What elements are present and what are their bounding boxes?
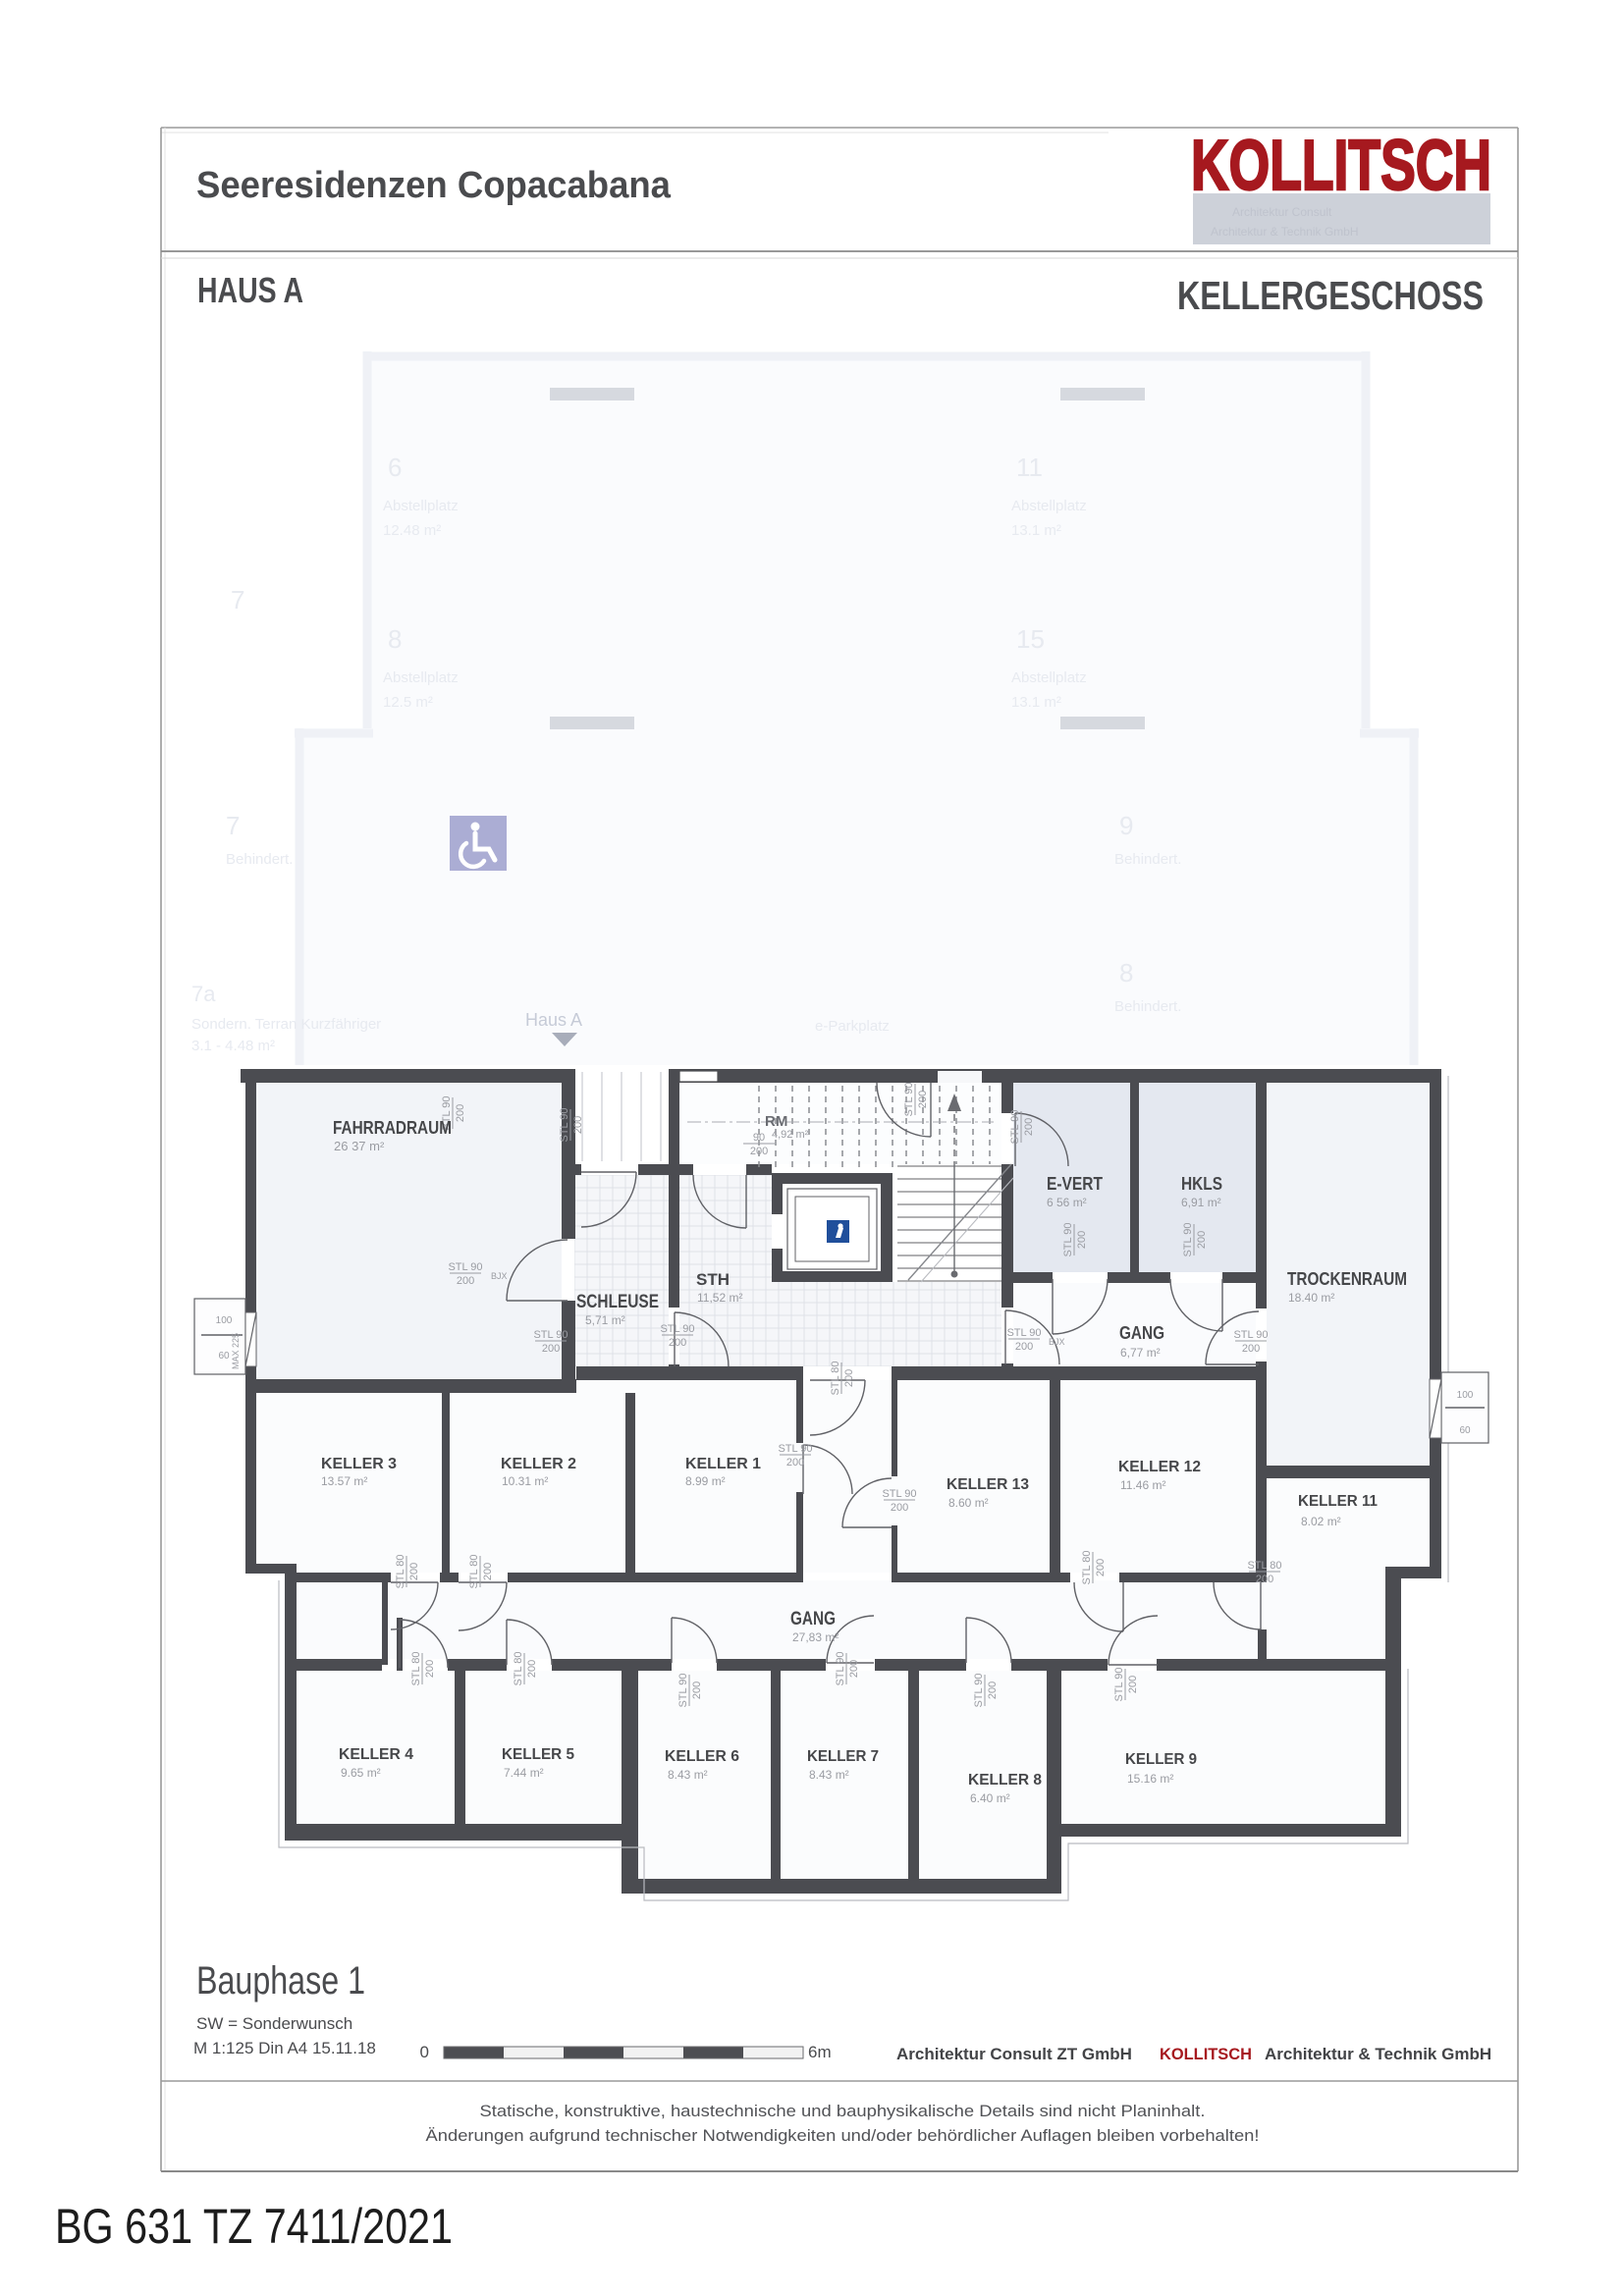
svg-text:200: 200 bbox=[572, 1116, 584, 1134]
svg-text:13.1 m²: 13.1 m² bbox=[1011, 694, 1061, 711]
svg-text:KELLER 4: KELLER 4 bbox=[339, 1746, 413, 1763]
svg-text:200: 200 bbox=[1076, 1231, 1088, 1249]
svg-text:60: 60 bbox=[1459, 1425, 1471, 1436]
svg-text:Sondern. Terran Kurzfähriger: Sondern. Terran Kurzfähriger bbox=[191, 1016, 381, 1033]
svg-text:60: 60 bbox=[218, 1351, 230, 1362]
svg-text:STL 80: STL 80 bbox=[410, 1651, 422, 1685]
svg-text:BJX: BJX bbox=[491, 1271, 508, 1281]
svg-text:Abstellplatz: Abstellplatz bbox=[1011, 498, 1087, 514]
svg-text:Seeresidenzen Copacabana: Seeresidenzen Copacabana bbox=[196, 165, 672, 206]
svg-text:8: 8 bbox=[388, 624, 402, 654]
svg-text:200: 200 bbox=[891, 1502, 908, 1514]
svg-text:6: 6 bbox=[388, 453, 402, 482]
svg-text:6m: 6m bbox=[808, 2043, 832, 2061]
svg-text:MAX 225: MAX 225 bbox=[231, 1333, 241, 1369]
svg-text:11,52 m²: 11,52 m² bbox=[697, 1291, 742, 1305]
svg-text:200: 200 bbox=[691, 1682, 703, 1699]
svg-text:Architektur Consult: Architektur Consult bbox=[1232, 205, 1332, 219]
svg-text:200: 200 bbox=[1196, 1231, 1208, 1249]
svg-text:Abstellplatz: Abstellplatz bbox=[383, 669, 459, 686]
svg-text:15: 15 bbox=[1016, 624, 1045, 654]
svg-text:200: 200 bbox=[750, 1146, 768, 1157]
svg-text:12.5 m²: 12.5 m² bbox=[383, 694, 433, 711]
svg-text:5,71 m²: 5,71 m² bbox=[585, 1313, 625, 1327]
svg-text:7.44 m²: 7.44 m² bbox=[504, 1766, 544, 1780]
svg-text:STL 90: STL 90 bbox=[1062, 1222, 1074, 1256]
svg-text:GANG: GANG bbox=[1119, 1323, 1164, 1343]
svg-text:200: 200 bbox=[424, 1660, 436, 1678]
svg-text:6 56 m²: 6 56 m² bbox=[1047, 1196, 1087, 1209]
svg-text:STL 90: STL 90 bbox=[778, 1443, 812, 1455]
svg-text:KELLER 9: KELLER 9 bbox=[1125, 1751, 1197, 1768]
svg-text:4,92 m²: 4,92 m² bbox=[772, 1129, 809, 1141]
svg-text:12.48 m²: 12.48 m² bbox=[383, 522, 441, 539]
svg-text:200: 200 bbox=[542, 1343, 560, 1355]
svg-text:STL 80: STL 80 bbox=[468, 1554, 480, 1588]
svg-text:KELLER 1: KELLER 1 bbox=[685, 1456, 761, 1472]
svg-text:200: 200 bbox=[1015, 1341, 1033, 1353]
svg-text:STL 90: STL 90 bbox=[559, 1107, 570, 1142]
svg-text:13.57 m²: 13.57 m² bbox=[321, 1474, 367, 1488]
svg-text:18.40 m²: 18.40 m² bbox=[1288, 1291, 1334, 1305]
svg-text:M 1:125 Din A4 15.11.18: M 1:125 Din A4 15.11.18 bbox=[193, 2039, 376, 2057]
svg-text:200: 200 bbox=[987, 1682, 999, 1699]
svg-text:6.40 m²: 6.40 m² bbox=[970, 1791, 1010, 1805]
svg-text:200: 200 bbox=[786, 1457, 804, 1468]
svg-text:RM: RM bbox=[765, 1113, 787, 1130]
svg-text:STL 80: STL 80 bbox=[830, 1361, 841, 1395]
svg-text:200: 200 bbox=[848, 1660, 860, 1678]
svg-text:KELLER 2: KELLER 2 bbox=[501, 1456, 576, 1472]
svg-text:8: 8 bbox=[1119, 958, 1133, 988]
svg-text:200: 200 bbox=[526, 1660, 538, 1678]
svg-text:FAHRRADRAUM: FAHRRADRAUM bbox=[333, 1118, 452, 1138]
svg-text:KELLER 3: KELLER 3 bbox=[321, 1456, 397, 1472]
svg-text:Abstellplatz: Abstellplatz bbox=[383, 498, 459, 514]
svg-text:STL 90: STL 90 bbox=[677, 1673, 689, 1707]
svg-text:8.02 m²: 8.02 m² bbox=[1301, 1515, 1341, 1528]
svg-text:KELLER 13: KELLER 13 bbox=[947, 1476, 1029, 1493]
svg-text:STL 90: STL 90 bbox=[973, 1673, 985, 1707]
svg-text:HAUS A: HAUS A bbox=[197, 270, 303, 310]
svg-text:KELLER 6: KELLER 6 bbox=[665, 1748, 739, 1765]
svg-text:SCHLEUSE: SCHLEUSE bbox=[576, 1292, 659, 1312]
svg-text:9.65 m²: 9.65 m² bbox=[341, 1766, 381, 1780]
svg-text:TROCKENRAUM: TROCKENRAUM bbox=[1287, 1269, 1407, 1289]
svg-text:200: 200 bbox=[482, 1563, 494, 1580]
svg-text:8.43 m²: 8.43 m² bbox=[809, 1768, 849, 1782]
svg-text:Änderungen aufgrund technische: Änderungen aufgrund technischer Notwendi… bbox=[426, 2127, 1260, 2145]
svg-text:KELLER 8: KELLER 8 bbox=[968, 1772, 1042, 1789]
svg-text:STL 90: STL 90 bbox=[533, 1329, 568, 1341]
svg-text:100: 100 bbox=[1457, 1390, 1474, 1401]
svg-text:7a: 7a bbox=[191, 982, 216, 1006]
svg-text:BJX: BJX bbox=[1049, 1337, 1065, 1347]
svg-text:Bauphase 1: Bauphase 1 bbox=[196, 1959, 365, 2002]
svg-text:200: 200 bbox=[457, 1275, 474, 1287]
svg-text:200: 200 bbox=[1095, 1559, 1107, 1576]
svg-text:STL 90: STL 90 bbox=[835, 1651, 846, 1685]
svg-text:STL 80: STL 80 bbox=[513, 1651, 524, 1685]
svg-text:KELLER 5: KELLER 5 bbox=[502, 1746, 574, 1763]
svg-text:Architektur & Technik GmbH: Architektur & Technik GmbH bbox=[1211, 225, 1359, 239]
svg-text:STL 90: STL 90 bbox=[1233, 1329, 1268, 1341]
svg-text:90: 90 bbox=[753, 1132, 765, 1144]
svg-text:STL 90: STL 90 bbox=[903, 1082, 915, 1116]
svg-text:KELLER 7: KELLER 7 bbox=[807, 1748, 879, 1765]
svg-text:7: 7 bbox=[226, 811, 240, 840]
svg-text:200: 200 bbox=[917, 1091, 929, 1108]
svg-text:200: 200 bbox=[455, 1104, 466, 1122]
svg-text:6,91 m²: 6,91 m² bbox=[1181, 1196, 1221, 1209]
svg-text:3.1 - 4.48 m²: 3.1 - 4.48 m² bbox=[191, 1038, 275, 1054]
svg-text:STL 90: STL 90 bbox=[882, 1488, 916, 1500]
svg-text:STL 80: STL 80 bbox=[1081, 1550, 1093, 1584]
svg-text:Statische, konstruktive, haust: Statische, konstruktive, haustechnische … bbox=[480, 2103, 1206, 2120]
svg-text:STL 90: STL 90 bbox=[1182, 1222, 1194, 1256]
svg-text:27,83 m²: 27,83 m² bbox=[792, 1630, 839, 1644]
svg-text:Behindert.: Behindert. bbox=[1114, 851, 1181, 868]
svg-text:Behindert.: Behindert. bbox=[1114, 998, 1181, 1015]
svg-text:13.1 m²: 13.1 m² bbox=[1011, 522, 1061, 539]
svg-text:KELLERGESCHOSS: KELLERGESCHOSS bbox=[1177, 273, 1484, 318]
svg-text:STL 90: STL 90 bbox=[448, 1261, 482, 1273]
svg-text:200: 200 bbox=[1127, 1676, 1139, 1693]
svg-text:200: 200 bbox=[1242, 1343, 1260, 1355]
svg-text:26 37 m²: 26 37 m² bbox=[334, 1139, 385, 1153]
svg-text:KELLER 11: KELLER 11 bbox=[1298, 1493, 1378, 1510]
svg-text:STL 90: STL 90 bbox=[1009, 1109, 1021, 1144]
svg-text:8.60 m²: 8.60 m² bbox=[948, 1496, 989, 1510]
svg-text:KELLER 12: KELLER 12 bbox=[1118, 1459, 1201, 1475]
svg-text:STL 80: STL 80 bbox=[395, 1554, 406, 1588]
svg-text:STL 80: STL 80 bbox=[1247, 1560, 1281, 1572]
svg-text:BG 631 TZ 7411/2021: BG 631 TZ 7411/2021 bbox=[55, 2199, 453, 2254]
svg-text:HKLS: HKLS bbox=[1181, 1174, 1222, 1194]
svg-text:11: 11 bbox=[1016, 453, 1043, 482]
svg-text:STL 90: STL 90 bbox=[1006, 1327, 1041, 1339]
svg-text:Architektur & Technik GmbH: Architektur & Technik GmbH bbox=[1265, 2045, 1491, 2063]
svg-text:10.31 m²: 10.31 m² bbox=[502, 1474, 548, 1488]
svg-text:Haus A: Haus A bbox=[525, 1010, 582, 1030]
svg-text:200: 200 bbox=[408, 1563, 420, 1580]
svg-text:STH: STH bbox=[696, 1270, 730, 1289]
svg-text:STL 90: STL 90 bbox=[660, 1323, 694, 1335]
svg-text:8.43 m²: 8.43 m² bbox=[668, 1768, 708, 1782]
svg-text:Abstellplatz: Abstellplatz bbox=[1011, 669, 1087, 686]
svg-text:200: 200 bbox=[1023, 1118, 1035, 1136]
svg-text:Architektur Consult ZT GmbH: Architektur Consult ZT GmbH bbox=[896, 2045, 1132, 2063]
svg-text:Behindert.: Behindert. bbox=[226, 851, 293, 868]
svg-text:200: 200 bbox=[843, 1369, 855, 1387]
svg-text:9: 9 bbox=[1119, 811, 1133, 840]
svg-text:11.46 m²: 11.46 m² bbox=[1120, 1478, 1165, 1492]
svg-text:e-Parkplatz: e-Parkplatz bbox=[815, 1018, 890, 1035]
svg-text:15.16 m²: 15.16 m² bbox=[1127, 1772, 1173, 1786]
svg-text:8.99 m²: 8.99 m² bbox=[685, 1474, 726, 1488]
svg-text:200: 200 bbox=[669, 1337, 686, 1349]
svg-text:0: 0 bbox=[420, 2043, 429, 2061]
svg-text:7: 7 bbox=[231, 585, 244, 614]
svg-text:SW = Sonderwunsch: SW = Sonderwunsch bbox=[196, 2014, 352, 2033]
svg-text:E-VERT: E-VERT bbox=[1047, 1174, 1103, 1194]
svg-text:6,77 m²: 6,77 m² bbox=[1120, 1346, 1161, 1360]
svg-text:100: 100 bbox=[216, 1315, 233, 1326]
svg-text:200: 200 bbox=[1256, 1574, 1273, 1585]
svg-text:GANG: GANG bbox=[790, 1609, 836, 1629]
svg-text:STL 90: STL 90 bbox=[1113, 1667, 1125, 1701]
svg-text:KOLLITSCH: KOLLITSCH bbox=[1160, 2045, 1252, 2063]
